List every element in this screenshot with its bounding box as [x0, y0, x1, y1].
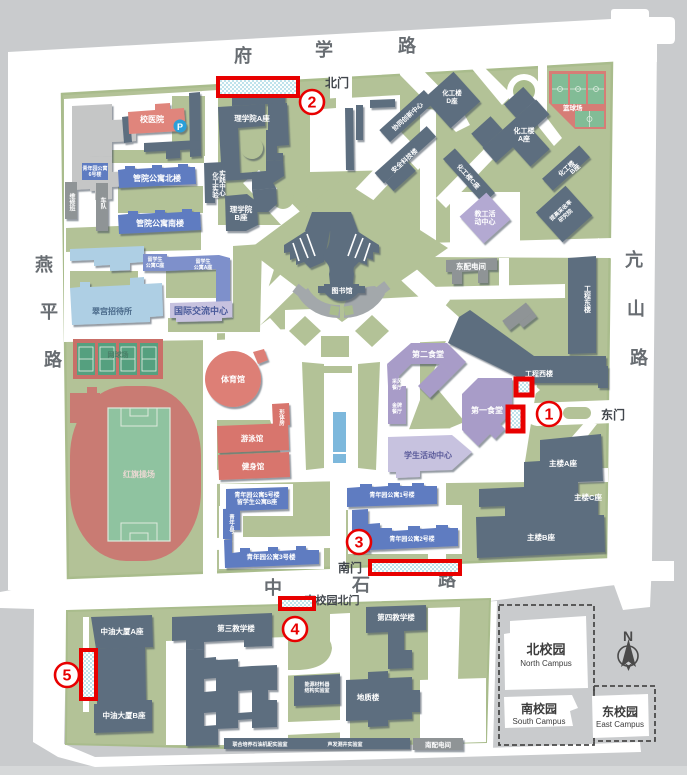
svg-text:红旗操场: 红旗操场	[123, 469, 155, 479]
svg-text:留学生: 留学生	[195, 258, 210, 265]
svg-text:公寓A座: 公寓A座	[194, 264, 213, 271]
svg-text:北门: 北门	[325, 75, 349, 90]
svg-text:青年园公寓1号楼: 青年园公寓1号楼	[369, 491, 414, 499]
svg-text:采风: 采风	[391, 378, 402, 385]
svg-text:South Campus: South Campus	[513, 717, 566, 726]
svg-text:化工楼: 化工楼	[442, 88, 462, 97]
svg-text:教工活: 教工活	[474, 209, 496, 218]
svg-text:平: 平	[40, 302, 58, 322]
svg-text:主楼B座: 主楼B座	[527, 532, 555, 542]
svg-text:东校园: 东校园	[602, 704, 638, 719]
svg-text:北校园: 北校园	[526, 642, 565, 657]
svg-text:第三教学楼: 第三教学楼	[217, 623, 255, 633]
svg-text:学: 学	[315, 39, 333, 60]
svg-text:2: 2	[308, 95, 317, 112]
svg-text:燕: 燕	[35, 254, 53, 275]
svg-text:学生活动中心: 学生活动中心	[404, 450, 452, 460]
svg-text:公寓C座: 公寓C座	[146, 262, 165, 269]
svg-text:山: 山	[627, 299, 645, 319]
svg-text:联合培养石油机配实验室: 联合培养石油机配实验室	[232, 741, 287, 748]
svg-text:留学生公寓B座: 留学生公寓B座	[237, 498, 277, 506]
svg-text:4: 4	[291, 622, 300, 639]
svg-text:青年园公寓: 青年园公寓	[82, 165, 107, 172]
svg-text:府: 府	[234, 45, 252, 66]
svg-text:5: 5	[63, 668, 72, 685]
svg-text:地质楼: 地质楼	[357, 692, 380, 702]
svg-text:青年园公寓2号楼: 青年园公寓2号楼	[389, 535, 434, 543]
svg-text:路: 路	[398, 35, 417, 56]
svg-text:B座: B座	[235, 212, 248, 222]
svg-text:化工楼: 化工楼	[514, 126, 535, 135]
svg-text:East Campus: East Campus	[596, 720, 644, 729]
svg-text:餐厅: 餐厅	[391, 384, 402, 391]
svg-text:1: 1	[545, 407, 554, 424]
svg-text:中油大厦A座: 中油大厦A座	[101, 626, 144, 636]
svg-text:声发测井实验室: 声发测井实验室	[326, 741, 362, 748]
svg-text:中油大厦B座: 中油大厦B座	[103, 710, 146, 720]
svg-text:游泳馆: 游泳馆	[241, 433, 264, 443]
svg-text:理学院A座: 理学院A座	[234, 113, 270, 123]
svg-text:North Campus: North Campus	[520, 659, 572, 668]
svg-text:结构实验室: 结构实验室	[304, 687, 329, 694]
svg-text:中: 中	[264, 577, 282, 598]
svg-text:第二食堂: 第二食堂	[412, 349, 444, 359]
svg-text:南配电间: 南配电间	[425, 740, 452, 749]
svg-text:健身馆: 健身馆	[242, 461, 265, 471]
svg-text:形体房: 形体房	[278, 408, 285, 427]
svg-text:东门: 东门	[601, 407, 625, 422]
svg-text:P: P	[177, 122, 183, 132]
svg-text:国际交流中心: 国际交流中心	[174, 305, 228, 316]
svg-text:青年园公寓3号楼: 青年园公寓3号楼	[246, 552, 296, 561]
svg-text:图书馆: 图书馆	[332, 286, 353, 295]
svg-text:动中心: 动中心	[475, 217, 496, 226]
svg-text:翠宫招待所: 翠宫招待所	[92, 306, 132, 316]
svg-text:篮球场: 篮球场	[562, 103, 583, 112]
svg-text:青年4号: 青年4号	[228, 513, 235, 535]
svg-text:路: 路	[44, 349, 63, 370]
svg-text:3: 3	[355, 535, 364, 552]
svg-text:主楼A座: 主楼A座	[549, 458, 577, 468]
svg-text:管院公寓南楼: 管院公寓南楼	[136, 218, 184, 228]
svg-text:石: 石	[351, 575, 370, 595]
svg-text:南校园: 南校园	[521, 701, 557, 716]
svg-text:南门: 南门	[338, 560, 362, 575]
svg-text:能源材料器: 能源材料器	[304, 681, 330, 688]
svg-text:工程东楼: 工程东楼	[584, 285, 592, 314]
svg-text:东配电间: 东配电间	[456, 261, 486, 271]
svg-text:留学生: 留学生	[147, 256, 162, 263]
svg-text:路: 路	[630, 347, 649, 368]
svg-text:亢: 亢	[625, 249, 643, 270]
svg-text:A座: A座	[518, 134, 530, 143]
svg-text:第四教学楼: 第四教学楼	[377, 612, 415, 622]
svg-text:餐厅: 餐厅	[391, 408, 402, 415]
svg-text:第一食堂: 第一食堂	[471, 405, 503, 415]
svg-text:管院公寓北楼: 管院公寓北楼	[133, 173, 181, 183]
svg-text:青年园公寓5号楼: 青年园公寓5号楼	[234, 491, 279, 499]
svg-text:主楼C座: 主楼C座	[574, 492, 602, 502]
svg-text:D座: D座	[446, 96, 458, 105]
svg-text:金牌: 金牌	[391, 402, 402, 409]
svg-text:网球场: 网球场	[108, 350, 129, 359]
svg-text:6号楼: 6号楼	[89, 171, 102, 178]
svg-text:体育馆: 体育馆	[221, 374, 245, 384]
svg-text:车队: 车队	[99, 196, 106, 210]
svg-text:校医院: 校医院	[140, 114, 164, 124]
